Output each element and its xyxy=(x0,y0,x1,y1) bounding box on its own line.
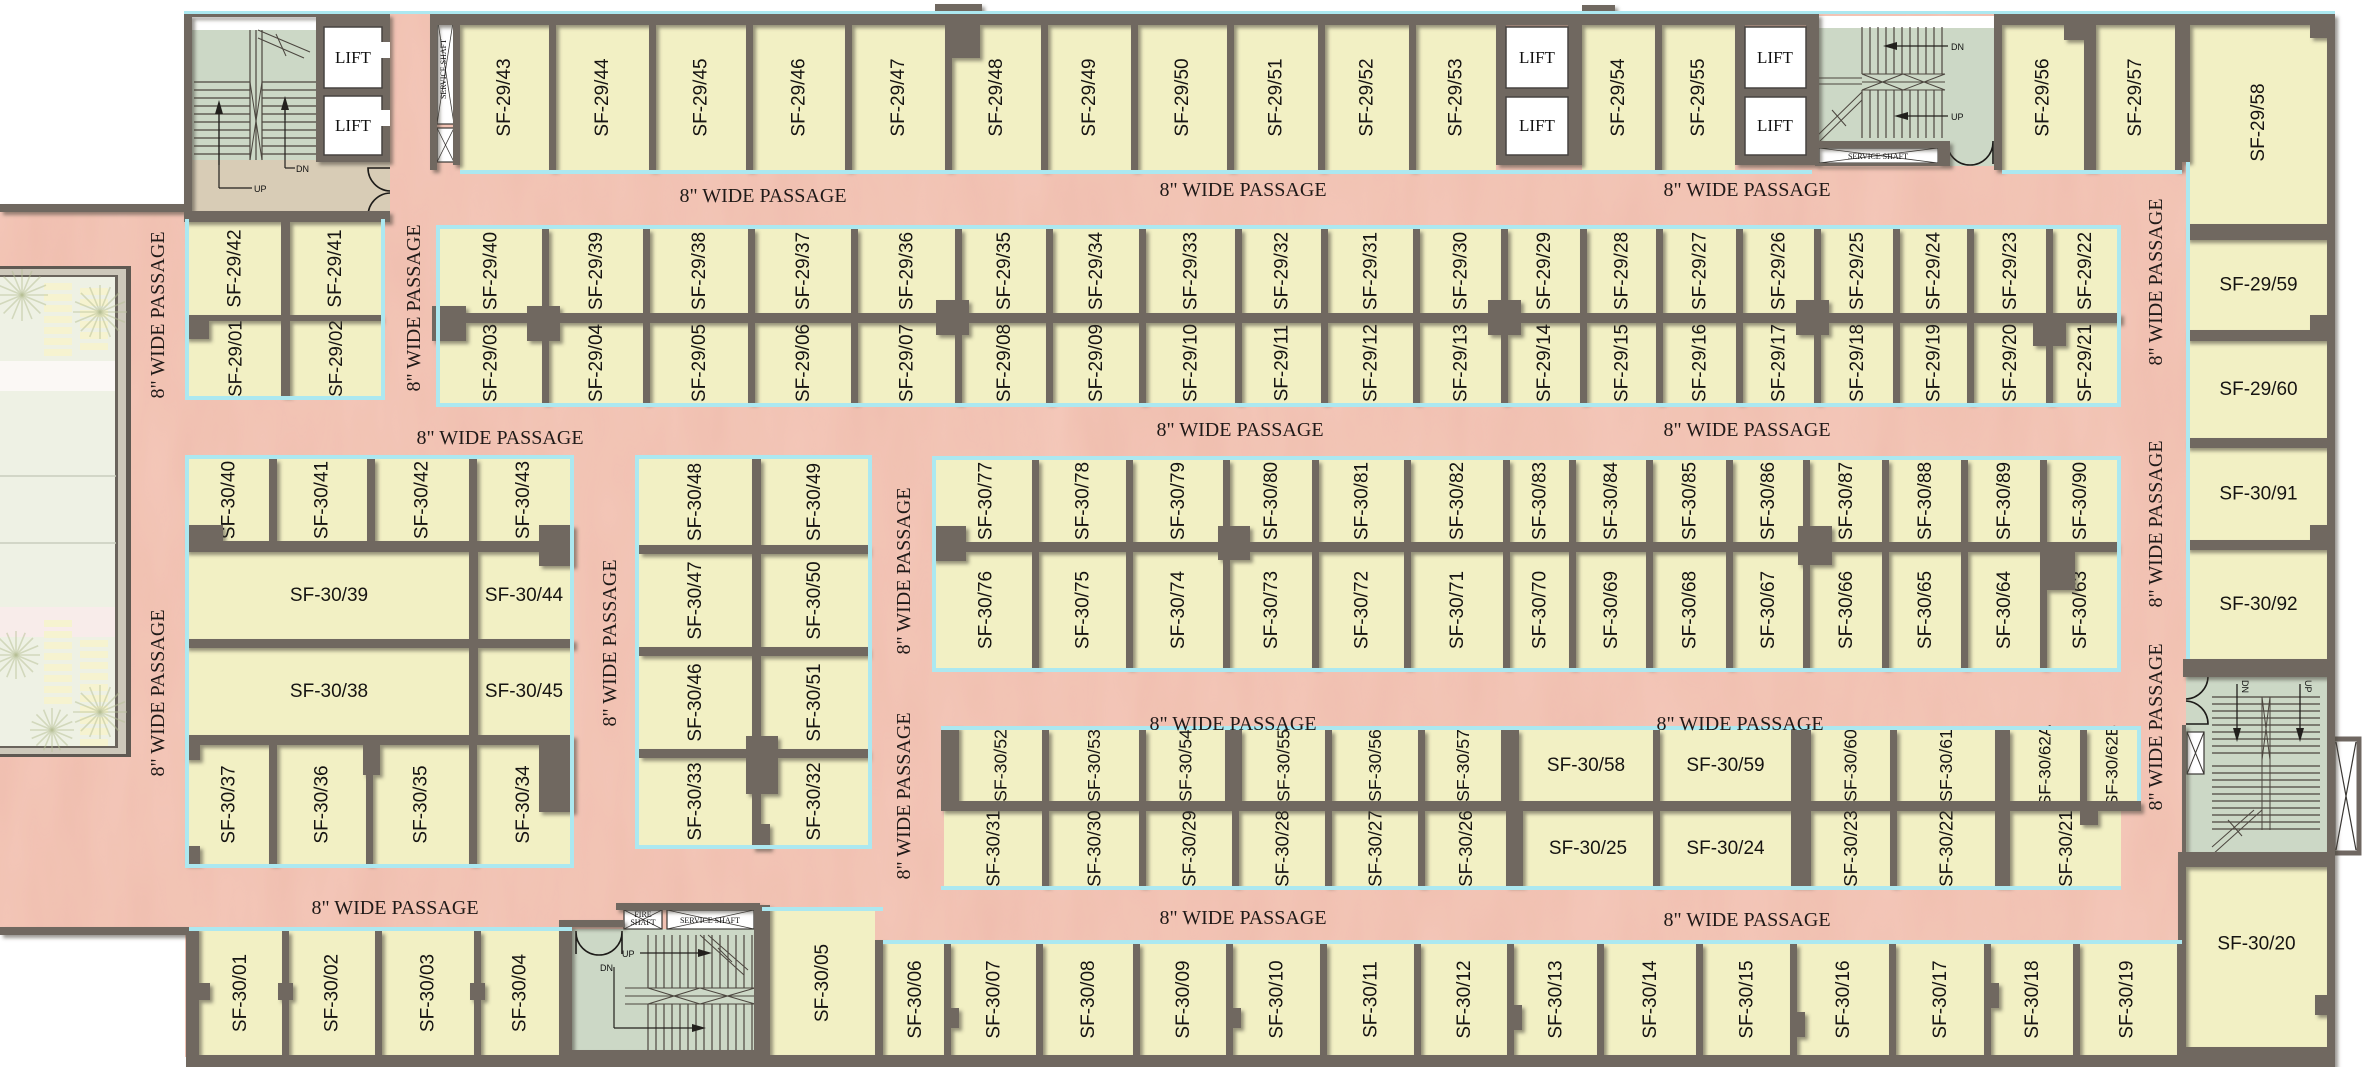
svg-text:8" WIDE PASSAGE: 8" WIDE PASSAGE xyxy=(893,487,915,654)
svg-text:SF-30/65: SF-30/65 xyxy=(1915,571,1936,649)
svg-text:SF-29/01: SF-29/01 xyxy=(225,320,246,396)
svg-text:SF-29/47: SF-29/47 xyxy=(888,58,909,136)
svg-text:SF-29/02: SF-29/02 xyxy=(325,320,346,396)
svg-text:SF-29/20: SF-29/20 xyxy=(2000,324,2021,402)
svg-text:SF-30/08: SF-30/08 xyxy=(1078,960,1099,1038)
svg-text:SF-30/12: SF-30/12 xyxy=(1454,960,1475,1038)
svg-text:SF-29/48: SF-29/48 xyxy=(986,58,1007,136)
svg-text:SF-30/19: SF-30/19 xyxy=(2117,960,2138,1038)
svg-text:SF-30/15: SF-30/15 xyxy=(1737,960,1758,1038)
svg-text:SF-30/79: SF-30/79 xyxy=(1168,462,1189,540)
svg-text:SF-30/91: SF-30/91 xyxy=(2219,484,2297,505)
svg-text:SF-30/66: SF-30/66 xyxy=(1836,571,1857,649)
svg-text:SF-30/27: SF-30/27 xyxy=(1365,810,1386,886)
svg-text:SF-29/54: SF-29/54 xyxy=(1608,58,1629,137)
svg-text:SF-29/27: SF-29/27 xyxy=(1690,232,1711,310)
svg-text:SF-30/37: SF-30/37 xyxy=(219,765,240,843)
svg-text:DN: DN xyxy=(600,963,613,973)
svg-text:SF-30/86: SF-30/86 xyxy=(1758,462,1779,540)
svg-text:SERVICE SHAFT: SERVICE SHAFT xyxy=(1848,152,1908,161)
svg-text:SF-30/25: SF-30/25 xyxy=(1549,838,1627,859)
svg-text:SF-29/36: SF-29/36 xyxy=(897,232,918,310)
svg-text:SF-29/46: SF-29/46 xyxy=(789,58,810,136)
svg-text:SF-30/04: SF-30/04 xyxy=(510,953,531,1032)
svg-text:8" WIDE PASSAGE: 8" WIDE PASSAGE xyxy=(1663,909,1830,931)
svg-text:SF-29/39: SF-29/39 xyxy=(586,232,607,310)
svg-text:SF-29/30: SF-29/30 xyxy=(1451,232,1472,310)
svg-text:SF-30/82: SF-30/82 xyxy=(1447,462,1468,540)
svg-text:SF-29/06: SF-29/06 xyxy=(793,324,814,402)
svg-text:SF-30/01: SF-30/01 xyxy=(230,954,251,1032)
svg-text:SF-29/03: SF-29/03 xyxy=(481,324,502,402)
svg-text:SF-30/14: SF-30/14 xyxy=(1640,960,1661,1039)
svg-text:SF-29/10: SF-29/10 xyxy=(1181,324,1202,402)
svg-text:SF-29/11: SF-29/11 xyxy=(1272,325,1293,402)
svg-text:SF-29/60: SF-29/60 xyxy=(2219,379,2297,400)
svg-text:8" WIDE PASSAGE: 8" WIDE PASSAGE xyxy=(1149,713,1316,735)
svg-text:SF-30/29: SF-30/29 xyxy=(1179,810,1200,886)
svg-text:SF-30/60: SF-30/60 xyxy=(1841,729,1861,802)
svg-text:LIFT: LIFT xyxy=(1519,116,1556,135)
svg-text:SF-30/84: SF-30/84 xyxy=(1601,461,1622,540)
svg-text:SF-30/11: SF-30/11 xyxy=(1361,961,1382,1038)
svg-text:SF-30/36: SF-30/36 xyxy=(312,765,333,843)
svg-text:SF-30/47: SF-30/47 xyxy=(685,561,706,639)
svg-text:SHAFT: SHAFT xyxy=(630,918,655,927)
svg-text:8" WIDE PASSAGE: 8" WIDE PASSAGE xyxy=(147,231,169,398)
svg-text:SF-30/46: SF-30/46 xyxy=(685,663,706,741)
svg-text:SF-30/45: SF-30/45 xyxy=(485,681,563,702)
svg-text:SF-30/92: SF-30/92 xyxy=(2219,594,2297,615)
svg-text:SF-29/16: SF-29/16 xyxy=(1690,324,1711,402)
svg-text:DN: DN xyxy=(296,164,309,174)
svg-text:SF-30/41: SF-30/41 xyxy=(312,461,333,539)
svg-text:SF-30/74: SF-30/74 xyxy=(1168,570,1189,649)
svg-text:UP: UP xyxy=(622,949,635,959)
svg-text:SF-29/40: SF-29/40 xyxy=(481,232,502,310)
svg-text:SF-29/22: SF-29/22 xyxy=(2075,232,2096,310)
svg-text:SF-29/28: SF-29/28 xyxy=(1612,232,1633,310)
svg-text:SF-30/52: SF-30/52 xyxy=(991,729,1011,802)
svg-text:SF-30/59: SF-30/59 xyxy=(1686,755,1764,776)
svg-text:SF-30/89: SF-30/89 xyxy=(1994,462,2015,540)
svg-text:SF-30/18: SF-30/18 xyxy=(2022,960,2043,1038)
svg-text:LIFT: LIFT xyxy=(335,48,372,67)
svg-text:SF-30/20: SF-30/20 xyxy=(2217,934,2295,955)
svg-text:SF-29/53: SF-29/53 xyxy=(1446,58,1467,136)
svg-text:8" WIDE PASSAGE: 8" WIDE PASSAGE xyxy=(893,712,915,879)
svg-text:SF-30/81: SF-30/81 xyxy=(1352,462,1373,540)
svg-text:SF-30/73: SF-30/73 xyxy=(1261,571,1282,649)
svg-text:SF-30/71: SF-30/71 xyxy=(1447,571,1468,649)
svg-text:SF-29/45: SF-29/45 xyxy=(691,58,712,136)
svg-text:SF-29/42: SF-29/42 xyxy=(225,229,246,307)
svg-text:SF-30/83: SF-30/83 xyxy=(1530,462,1551,540)
svg-text:SF-30/68: SF-30/68 xyxy=(1680,571,1701,649)
svg-text:SF-30/03: SF-30/03 xyxy=(418,954,439,1032)
svg-text:SF-30/17: SF-30/17 xyxy=(1930,960,1951,1038)
svg-text:SF-29/17: SF-29/17 xyxy=(1769,324,1790,402)
svg-text:LIFT: LIFT xyxy=(335,116,372,135)
svg-text:SF-30/06: SF-30/06 xyxy=(905,960,926,1038)
svg-text:SF-30/31: SF-30/31 xyxy=(983,810,1004,886)
svg-text:8" WIDE PASSAGE: 8" WIDE PASSAGE xyxy=(2145,198,2167,365)
svg-text:SF-30/75: SF-30/75 xyxy=(1073,571,1094,649)
svg-text:SF-29/05: SF-29/05 xyxy=(689,324,710,402)
svg-text:SF-30/21: SF-30/21 xyxy=(2055,810,2076,886)
svg-text:SF-30/39: SF-30/39 xyxy=(290,585,368,606)
svg-text:SF-29/31: SF-29/31 xyxy=(1361,232,1382,310)
svg-text:LIFT: LIFT xyxy=(1519,48,1556,67)
svg-text:8" WIDE PASSAGE: 8" WIDE PASSAGE xyxy=(1656,713,1823,735)
svg-text:SF-30/62A: SF-30/62A xyxy=(2036,724,2055,806)
svg-text:SF-30/02: SF-30/02 xyxy=(322,954,343,1032)
svg-text:8" WIDE PASSAGE: 8" WIDE PASSAGE xyxy=(679,185,846,207)
svg-text:SF-30/87: SF-30/87 xyxy=(1836,462,1857,540)
svg-text:SF-29/19: SF-29/19 xyxy=(1924,324,1945,402)
svg-text:SF-29/04: SF-29/04 xyxy=(586,323,607,402)
svg-text:SF-30/26: SF-30/26 xyxy=(1455,810,1476,886)
svg-text:SF-30/30: SF-30/30 xyxy=(1084,810,1105,886)
svg-text:8" WIDE PASSAGE: 8" WIDE PASSAGE xyxy=(1663,419,1830,441)
svg-text:SF-29/13: SF-29/13 xyxy=(1451,324,1472,402)
svg-text:SF-29/33: SF-29/33 xyxy=(1181,232,1202,310)
svg-text:SF-29/09: SF-29/09 xyxy=(1086,324,1107,402)
svg-text:SF-30/58: SF-30/58 xyxy=(1547,755,1625,776)
svg-text:SF-29/37: SF-29/37 xyxy=(793,232,814,310)
svg-text:SF-30/50: SF-30/50 xyxy=(804,561,825,639)
svg-text:SF-30/38: SF-30/38 xyxy=(290,681,368,702)
svg-text:SF-30/42: SF-30/42 xyxy=(412,461,433,539)
svg-text:SF-29/44: SF-29/44 xyxy=(592,58,613,137)
svg-text:SF-30/76: SF-30/76 xyxy=(976,571,997,649)
svg-text:SF-30/23: SF-30/23 xyxy=(1840,810,1861,886)
svg-text:SF-30/44: SF-30/44 xyxy=(485,585,564,606)
svg-text:SF-30/69: SF-30/69 xyxy=(1601,571,1622,649)
svg-text:UP: UP xyxy=(1951,112,1964,122)
svg-text:SF-29/56: SF-29/56 xyxy=(2033,58,2054,136)
svg-text:SF-30/55: SF-30/55 xyxy=(1274,729,1294,802)
svg-text:8" WIDE PASSAGE: 8" WIDE PASSAGE xyxy=(311,897,478,919)
svg-text:SF-29/52: SF-29/52 xyxy=(1357,58,1378,136)
svg-text:8" WIDE PASSAGE: 8" WIDE PASSAGE xyxy=(1159,179,1326,201)
svg-text:SF-30/13: SF-30/13 xyxy=(1546,960,1567,1038)
svg-text:UP: UP xyxy=(2303,680,2313,693)
svg-text:SF-29/59: SF-29/59 xyxy=(2219,275,2297,296)
svg-text:SERVICE SHAFT: SERVICE SHAFT xyxy=(439,39,448,99)
svg-text:SF-29/49: SF-29/49 xyxy=(1079,58,1100,136)
svg-text:SF-29/50: SF-29/50 xyxy=(1172,58,1193,136)
svg-text:SF-29/58: SF-29/58 xyxy=(2248,83,2269,161)
svg-text:SF-30/77: SF-30/77 xyxy=(976,462,997,540)
svg-text:SF-30/48: SF-30/48 xyxy=(685,463,706,541)
svg-text:SF-30/57: SF-30/57 xyxy=(1453,729,1473,802)
svg-text:SF-30/24: SF-30/24 xyxy=(1686,838,1765,859)
svg-text:DN: DN xyxy=(2240,680,2250,693)
svg-text:SF-30/90: SF-30/90 xyxy=(2070,462,2091,540)
svg-text:SF-29/26: SF-29/26 xyxy=(1769,232,1790,310)
svg-text:8" WIDE PASSAGE: 8" WIDE PASSAGE xyxy=(599,559,621,726)
svg-text:SF-29/41: SF-29/41 xyxy=(325,229,346,307)
svg-text:8" WIDE PASSAGE: 8" WIDE PASSAGE xyxy=(416,427,583,449)
svg-text:SF-29/07: SF-29/07 xyxy=(897,324,918,402)
svg-text:SF-30/72: SF-30/72 xyxy=(1352,571,1373,649)
svg-text:SF-29/25: SF-29/25 xyxy=(1847,232,1868,310)
svg-text:SF-29/15: SF-29/15 xyxy=(1612,324,1633,402)
svg-text:SF-30/88: SF-30/88 xyxy=(1915,462,1936,540)
svg-text:SF-30/49: SF-30/49 xyxy=(804,463,825,541)
svg-text:SF-30/56: SF-30/56 xyxy=(1365,729,1385,802)
svg-text:SF-29/29: SF-29/29 xyxy=(1534,232,1555,310)
svg-text:8" WIDE PASSAGE: 8" WIDE PASSAGE xyxy=(2145,440,2167,607)
svg-text:SF-29/24: SF-29/24 xyxy=(1924,231,1945,310)
svg-text:SF-29/32: SF-29/32 xyxy=(1272,232,1293,310)
svg-text:SF-30/70: SF-30/70 xyxy=(1530,571,1551,649)
svg-text:SF-29/12: SF-29/12 xyxy=(1361,324,1382,402)
svg-text:8" WIDE PASSAGE: 8" WIDE PASSAGE xyxy=(2145,643,2167,810)
svg-text:SF-30/85: SF-30/85 xyxy=(1680,462,1701,540)
svg-text:8" WIDE PASSAGE: 8" WIDE PASSAGE xyxy=(1159,907,1326,929)
svg-text:LIFT: LIFT xyxy=(1757,48,1794,67)
svg-text:SF-30/62B: SF-30/62B xyxy=(2103,725,2122,806)
svg-text:SF-30/43: SF-30/43 xyxy=(513,461,534,539)
svg-text:SF-29/38: SF-29/38 xyxy=(689,232,710,310)
svg-text:SF-30/67: SF-30/67 xyxy=(1758,571,1779,649)
svg-text:8" WIDE PASSAGE: 8" WIDE PASSAGE xyxy=(1156,419,1323,441)
svg-text:SF-30/54: SF-30/54 xyxy=(1176,729,1196,802)
svg-text:8" WIDE PASSAGE: 8" WIDE PASSAGE xyxy=(403,224,425,391)
svg-text:SF-30/28: SF-30/28 xyxy=(1272,810,1293,886)
svg-text:DN: DN xyxy=(1951,42,1964,52)
svg-text:SF-29/43: SF-29/43 xyxy=(494,58,515,136)
svg-text:SF-30/16: SF-30/16 xyxy=(1833,960,1854,1038)
svg-text:SF-30/10: SF-30/10 xyxy=(1267,960,1288,1038)
svg-text:SF-30/09: SF-30/09 xyxy=(1173,960,1194,1038)
svg-text:SF-30/07: SF-30/07 xyxy=(984,960,1005,1038)
svg-text:SF-29/21: SF-29/21 xyxy=(2075,324,2096,402)
svg-text:SF-30/61: SF-30/61 xyxy=(1936,729,1956,802)
svg-text:SF-30/53: SF-30/53 xyxy=(1084,729,1104,802)
svg-text:SF-29/23: SF-29/23 xyxy=(2000,232,2021,310)
svg-text:SF-30/64: SF-30/64 xyxy=(1994,570,2015,649)
svg-text:SF-30/51: SF-30/51 xyxy=(804,663,825,741)
svg-text:SF-29/51: SF-29/51 xyxy=(1266,58,1287,136)
svg-text:SF-30/32: SF-30/32 xyxy=(804,762,825,840)
svg-text:SF-29/57: SF-29/57 xyxy=(2125,58,2146,136)
svg-text:LIFT: LIFT xyxy=(1757,116,1794,135)
svg-text:8" WIDE PASSAGE: 8" WIDE PASSAGE xyxy=(147,609,169,776)
svg-text:SF-29/18: SF-29/18 xyxy=(1847,324,1868,402)
svg-text:SF-30/22: SF-30/22 xyxy=(1936,810,1957,886)
svg-text:SF-30/35: SF-30/35 xyxy=(411,765,432,843)
svg-text:SF-29/14: SF-29/14 xyxy=(1534,323,1555,402)
svg-text:SF-30/33: SF-30/33 xyxy=(685,762,706,840)
svg-text:UP: UP xyxy=(254,184,267,194)
svg-text:SF-30/34: SF-30/34 xyxy=(513,765,534,844)
svg-text:SF-29/55: SF-29/55 xyxy=(1688,58,1709,136)
svg-text:SERVICE SHAFT: SERVICE SHAFT xyxy=(680,916,740,925)
svg-text:8" WIDE PASSAGE: 8" WIDE PASSAGE xyxy=(1663,179,1830,201)
svg-text:SF-29/35: SF-29/35 xyxy=(994,232,1015,310)
svg-text:SF-29/34: SF-29/34 xyxy=(1086,231,1107,310)
svg-text:SF-30/80: SF-30/80 xyxy=(1261,462,1282,540)
svg-text:SF-30/05: SF-30/05 xyxy=(812,944,833,1022)
svg-text:SF-29/08: SF-29/08 xyxy=(994,324,1015,402)
svg-text:SF-30/78: SF-30/78 xyxy=(1073,462,1094,540)
